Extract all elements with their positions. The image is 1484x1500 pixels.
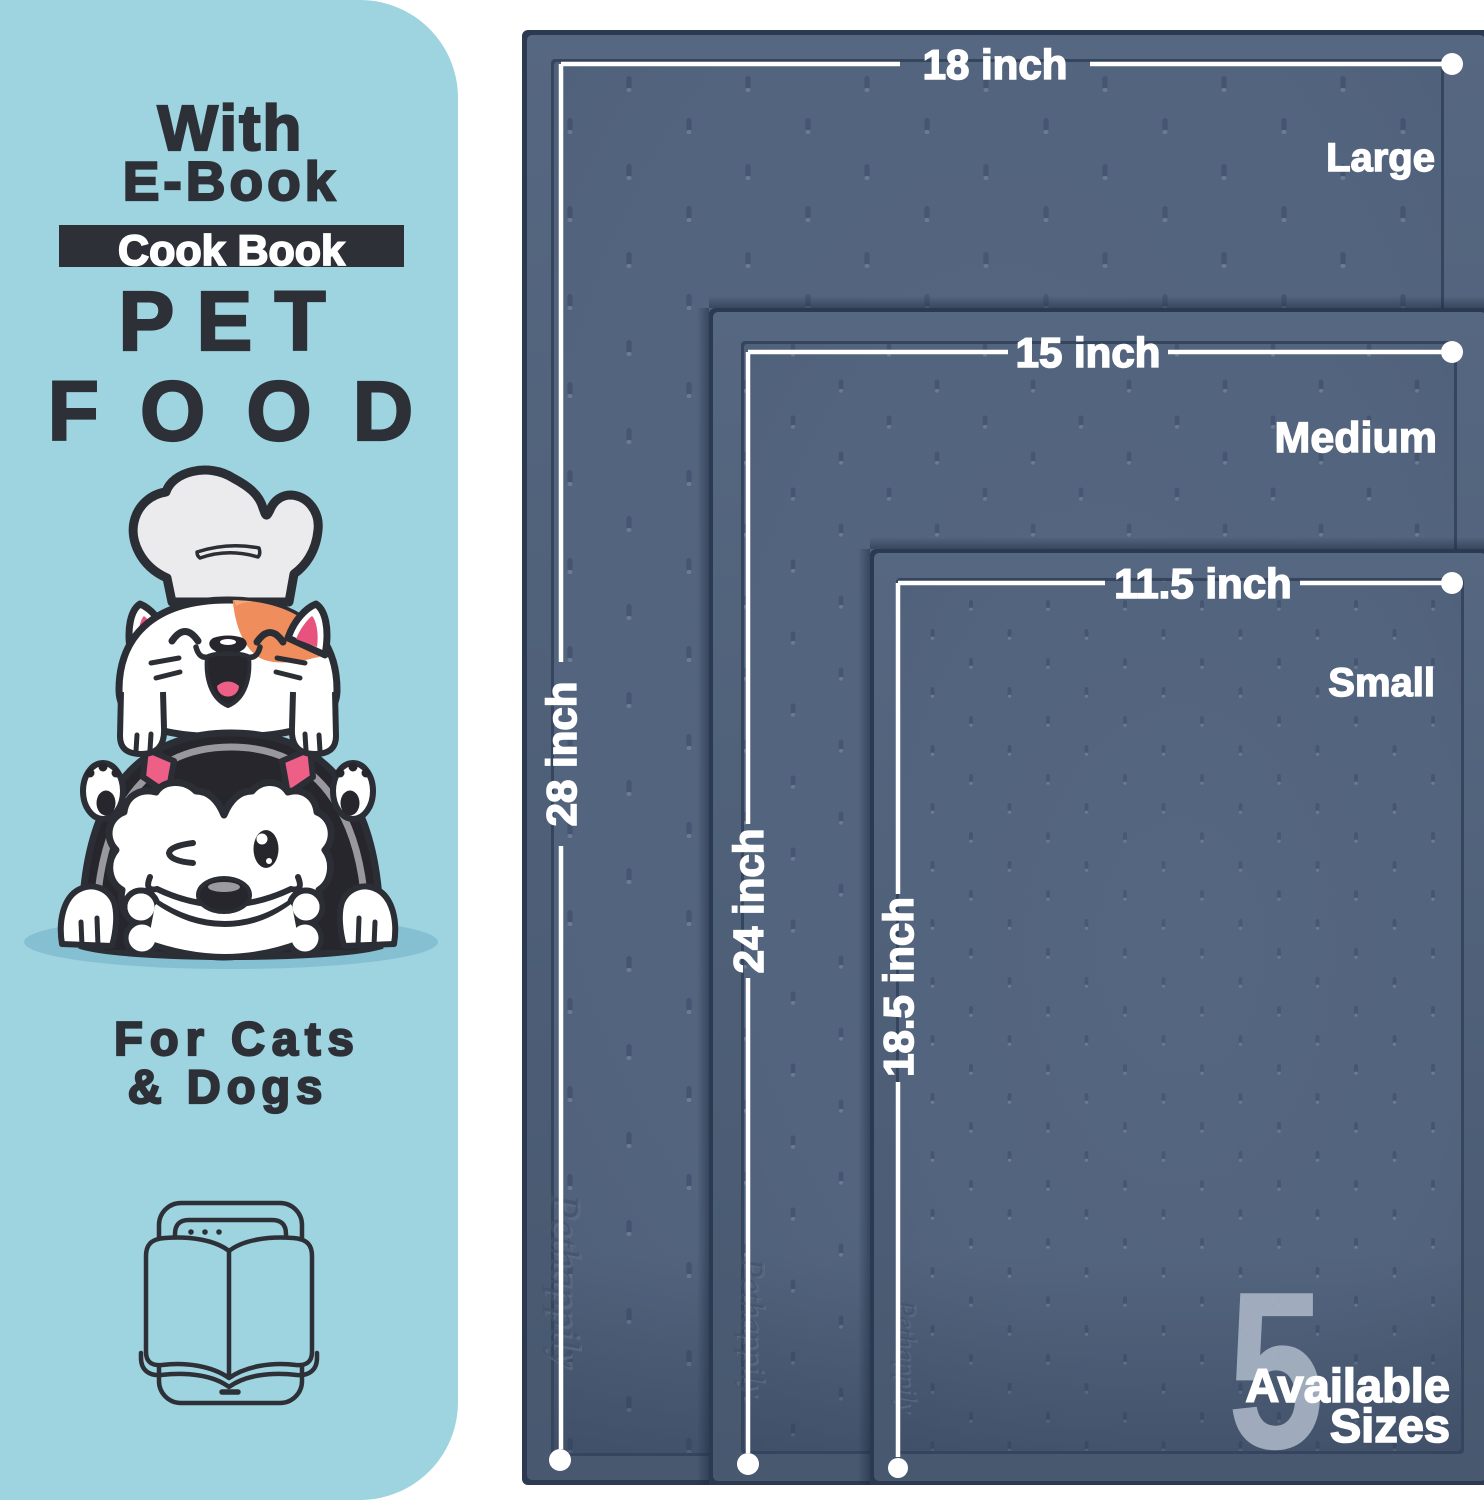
svg-text:Small: Small <box>1328 661 1435 705</box>
svg-text:18.5 inch: 18.5 inch <box>875 897 922 1077</box>
svg-text:Pethappily: Pethappily <box>890 1299 919 1413</box>
svg-text:11.5 inch: 11.5 inch <box>1114 560 1291 607</box>
svg-text:18 inch: 18 inch <box>923 41 1068 88</box>
svg-text:24 inch: 24 inch <box>725 829 772 974</box>
svg-text:Large: Large <box>1326 136 1435 180</box>
svg-text:Sizes: Sizes <box>1330 1399 1450 1452</box>
svg-text:15 inch: 15 inch <box>1016 329 1161 376</box>
svg-text:28 inch: 28 inch <box>538 682 585 827</box>
svg-text:Pethappily: Pethappily <box>734 1257 770 1397</box>
svg-text:Pethappily: Pethappily <box>542 1193 587 1368</box>
svg-text:Medium: Medium <box>1275 414 1437 462</box>
